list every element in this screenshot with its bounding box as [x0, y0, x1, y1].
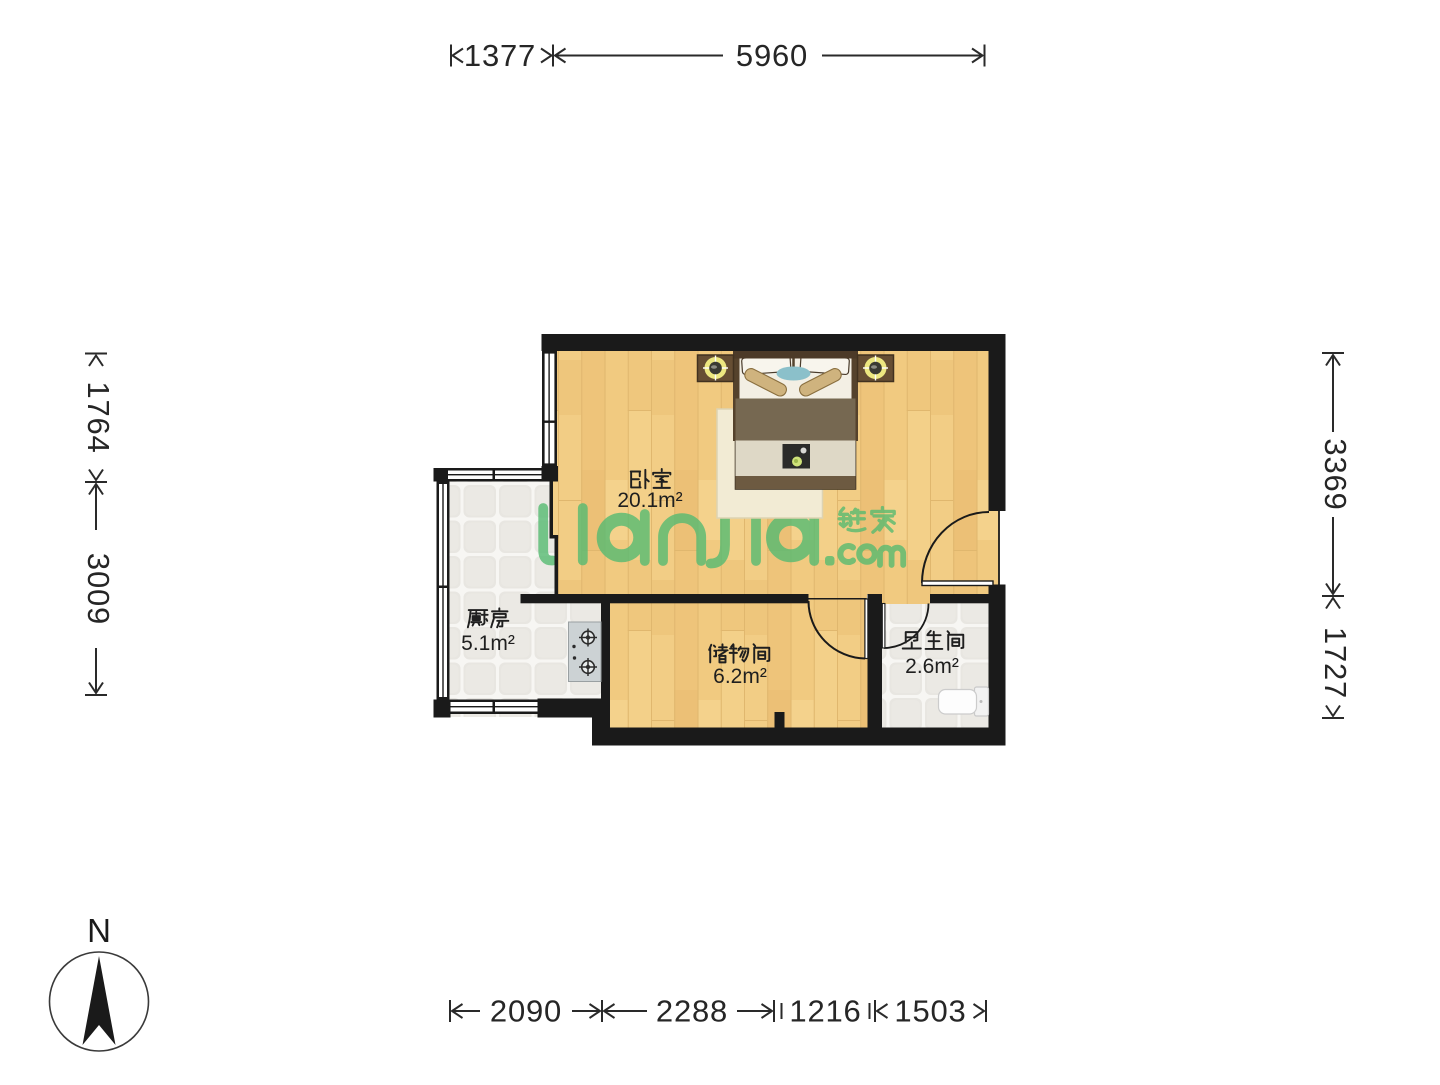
svg-text:2.6m²: 2.6m² — [905, 655, 959, 678]
svg-text:20.1m²: 20.1m² — [617, 489, 682, 512]
svg-text:1503: 1503 — [894, 994, 966, 1029]
svg-text:2090: 2090 — [490, 994, 562, 1029]
svg-text:6.2m²: 6.2m² — [713, 665, 767, 688]
svg-text:N: N — [87, 912, 111, 949]
svg-text:1216: 1216 — [789, 994, 861, 1029]
svg-text:1727: 1727 — [1318, 627, 1353, 699]
svg-text:1377: 1377 — [464, 38, 536, 73]
svg-text:3369: 3369 — [1318, 438, 1353, 510]
svg-text:5960: 5960 — [736, 38, 808, 73]
svg-text:2288: 2288 — [656, 994, 728, 1029]
svg-text:1764: 1764 — [81, 381, 116, 453]
svg-text:3009: 3009 — [81, 553, 116, 625]
svg-text:5.1m²: 5.1m² — [461, 632, 515, 655]
